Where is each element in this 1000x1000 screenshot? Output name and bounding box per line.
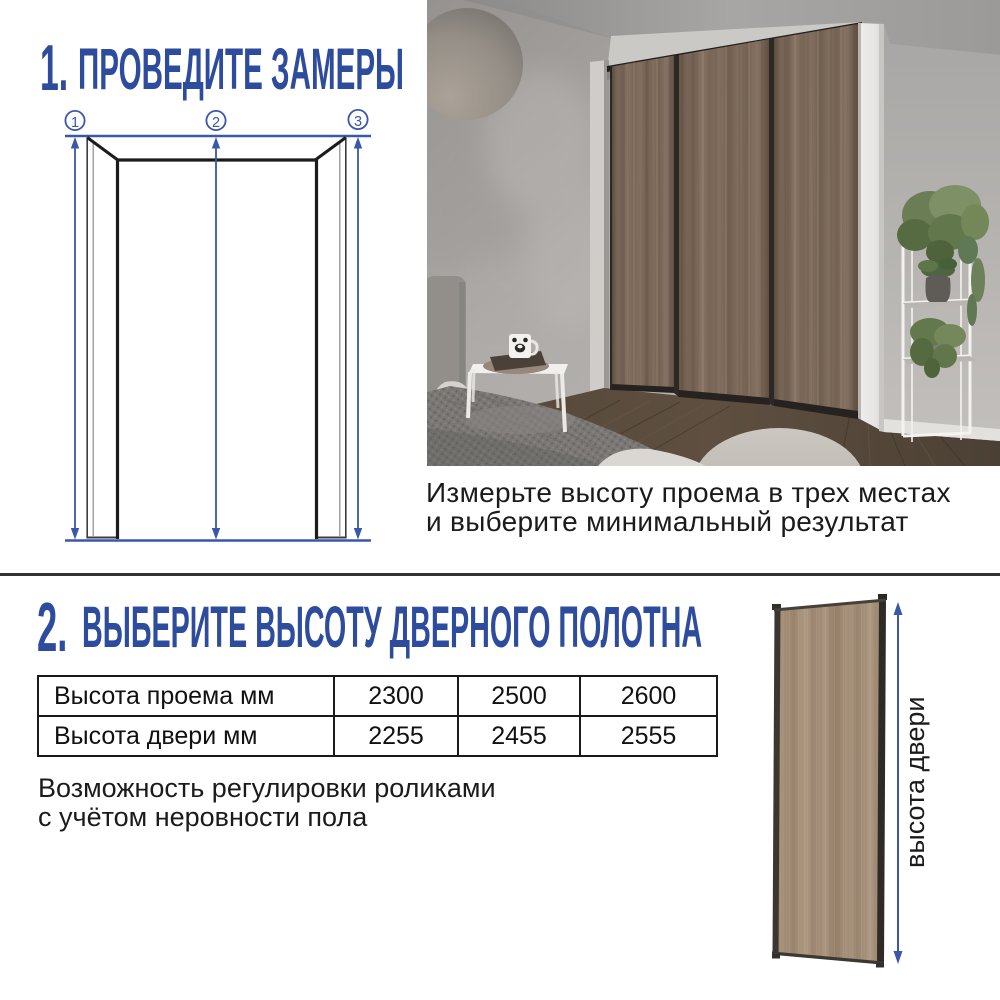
- svg-text:2: 2: [212, 115, 220, 131]
- svg-text:3: 3: [354, 114, 362, 130]
- svg-text:1: 1: [71, 115, 79, 131]
